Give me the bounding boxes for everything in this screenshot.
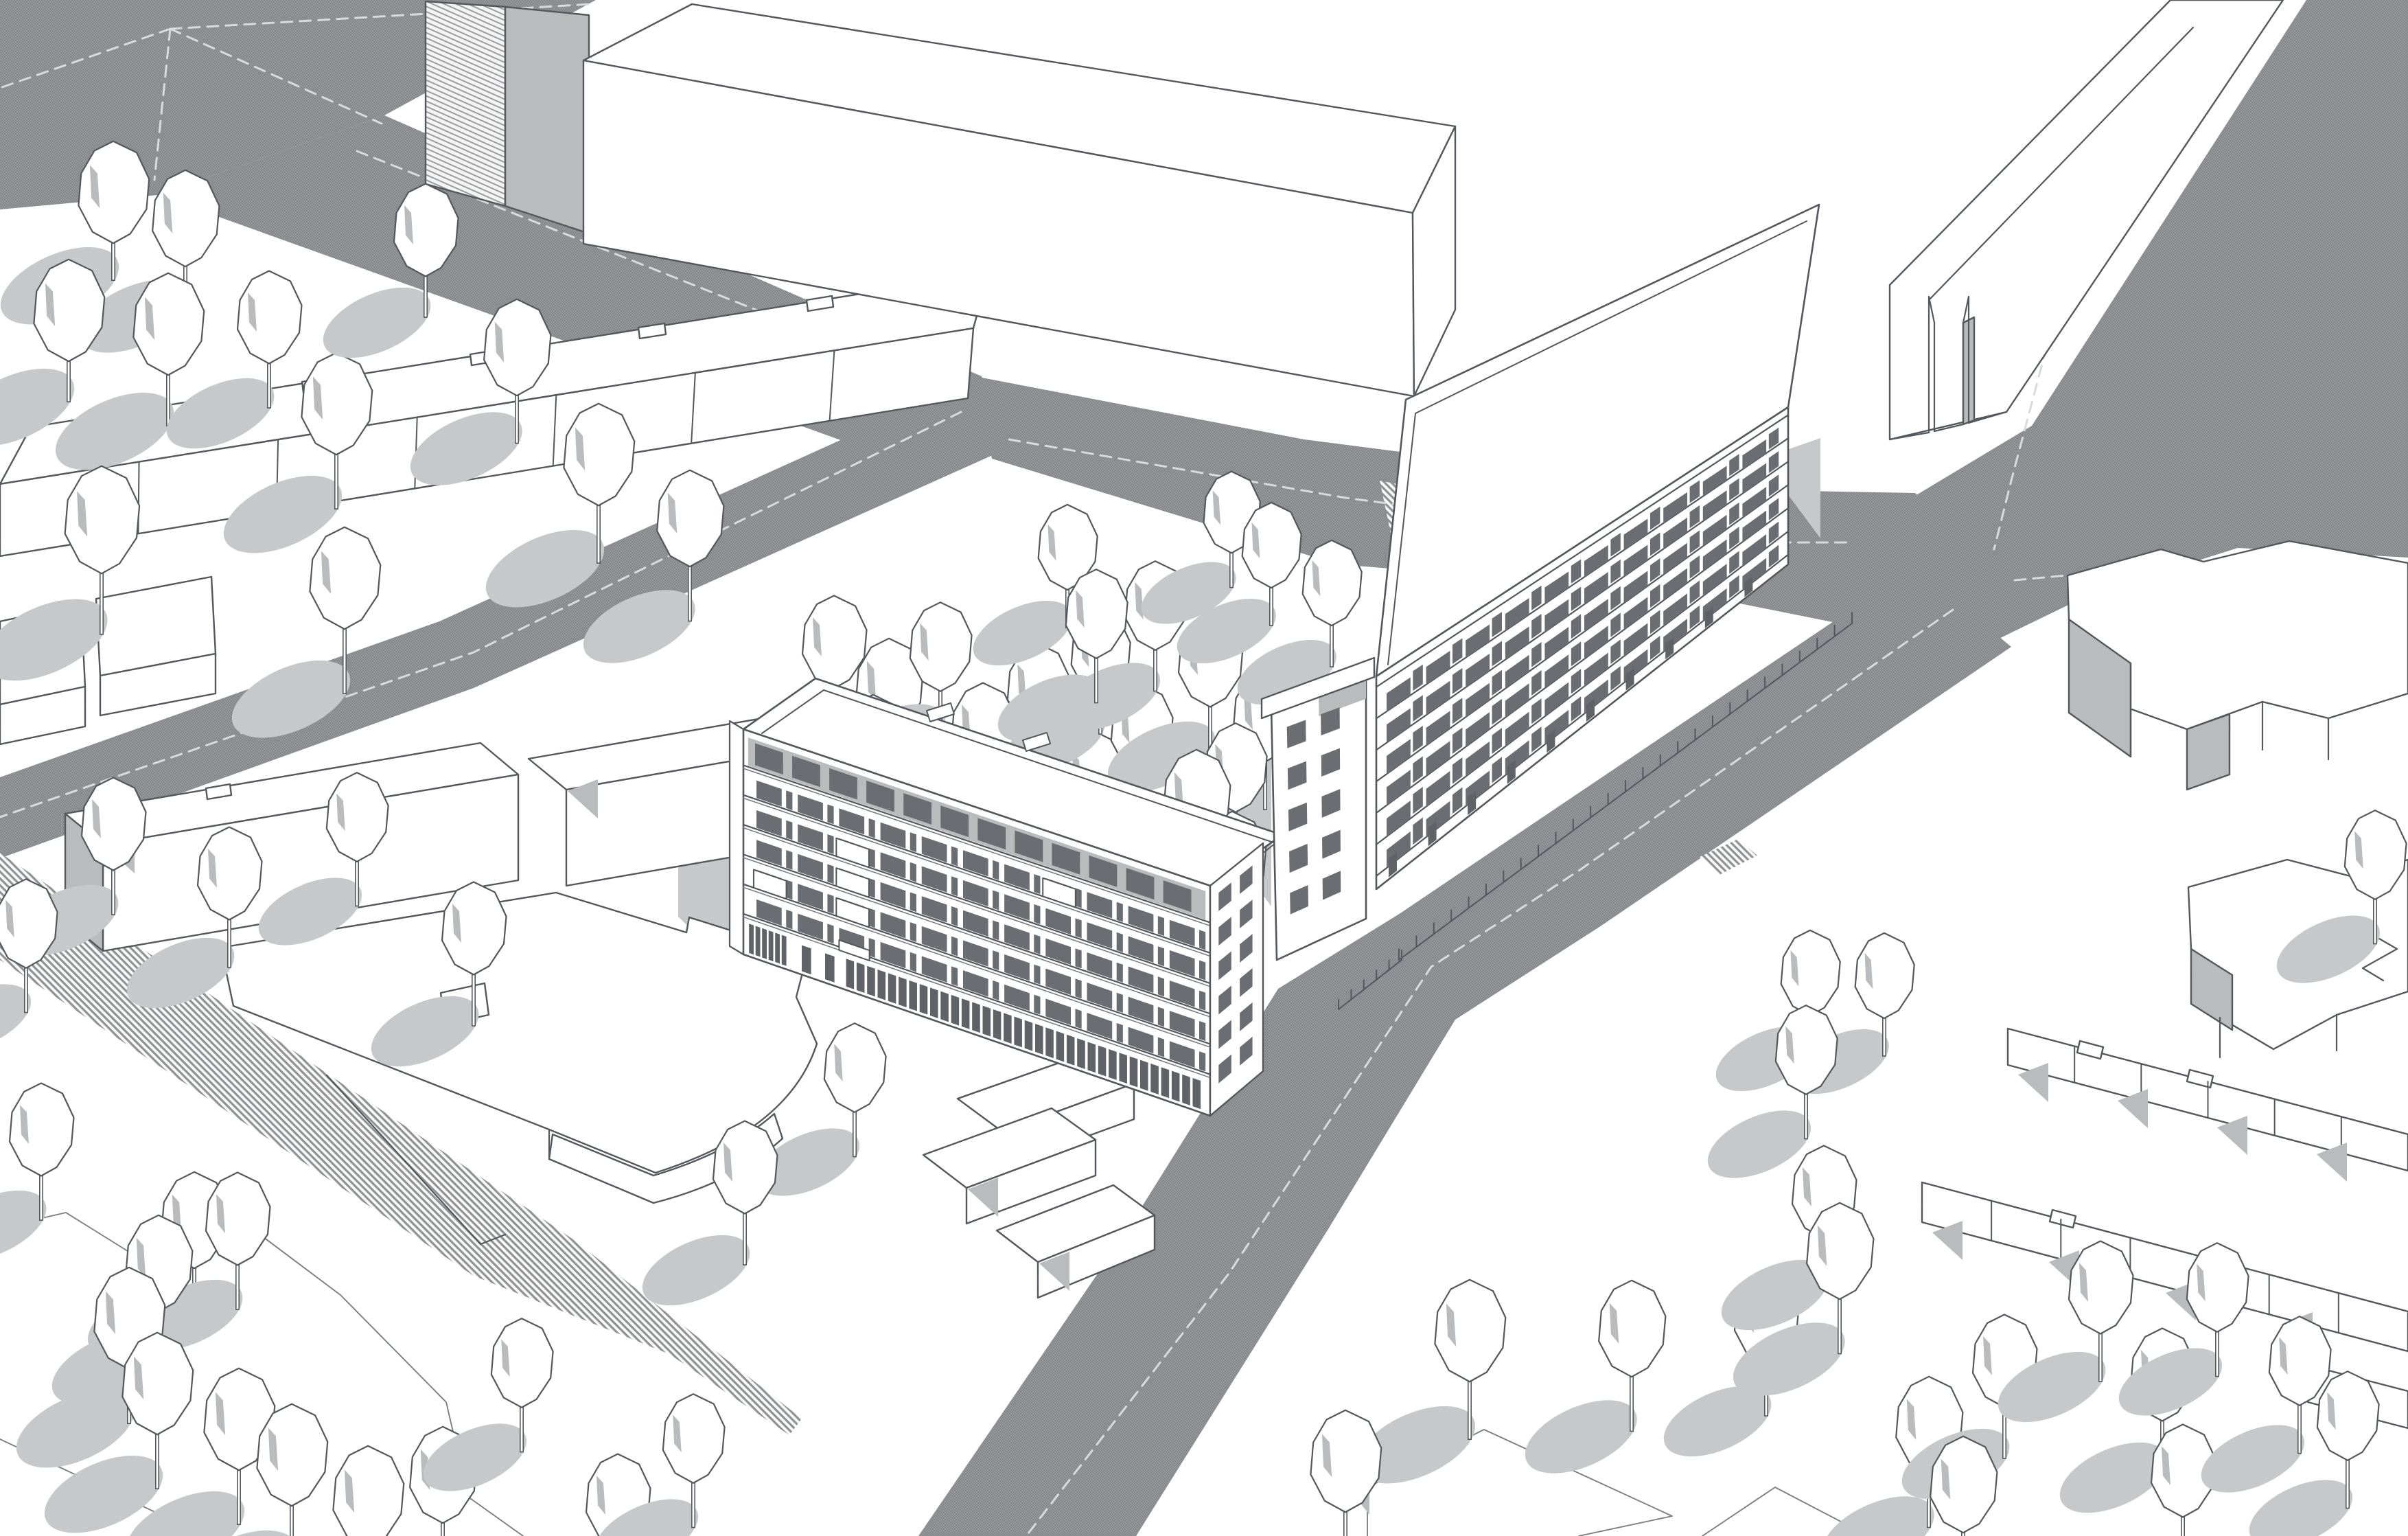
tree-trunk [40, 1170, 43, 1220]
window-door [827, 894, 833, 914]
window-door [1158, 916, 1164, 936]
storefront-window [1088, 1042, 1096, 1073]
tree-shadow [0, 970, 41, 1066]
tree-trunk [516, 389, 518, 443]
window-door [786, 880, 792, 899]
tree-trunk [1883, 1013, 1886, 1056]
storefront-window [1004, 1013, 1012, 1044]
window-door [951, 937, 958, 956]
tree-trunk [167, 369, 170, 426]
storefront-window [909, 981, 917, 1011]
window-door [910, 952, 916, 972]
tree-trunk [2374, 894, 2376, 944]
sliver-building-north-face [505, 7, 589, 233]
storefront-window [1119, 1053, 1127, 1084]
window-door [993, 920, 999, 940]
window-door [869, 818, 875, 838]
tree-trunk [236, 1259, 239, 1309]
storefront-window [1140, 1060, 1148, 1091]
window-door [951, 876, 958, 896]
window-door [786, 790, 792, 810]
window-door [1117, 1023, 1123, 1043]
tree-canopy [824, 1023, 886, 1112]
site-axonometric-drawing [0, 0, 2408, 1536]
storefront-window [846, 959, 855, 989]
window-door [786, 850, 792, 870]
tree-shadow [1221, 1524, 1363, 1536]
window-door [993, 860, 999, 880]
tree-canopy [1310, 1410, 1381, 1513]
window-door [1199, 960, 1205, 980]
tree-trunk [1468, 1375, 1471, 1439]
tree-trunk [2298, 1400, 2301, 1454]
storefront-window [1150, 1064, 1159, 1094]
window-door [1034, 935, 1040, 954]
storefront-window [1172, 1070, 1180, 1101]
tree-canopy [333, 1446, 404, 1536]
tree [0, 1084, 74, 1276]
tree [413, 1318, 553, 1505]
window-door [993, 981, 999, 1000]
entrance-door [825, 953, 835, 983]
window-door [1199, 930, 1205, 950]
window-door [1034, 874, 1040, 894]
window-door [951, 906, 958, 926]
window-door [786, 910, 792, 930]
window-door [910, 862, 916, 882]
storefront-window [930, 987, 938, 1018]
tree-trunk [2216, 1327, 2219, 1377]
window-door [827, 924, 833, 943]
storefront-window [1130, 1056, 1138, 1087]
storefront-window [983, 1006, 991, 1037]
tree-canopy [1781, 930, 1840, 1016]
tree-trunk [472, 969, 475, 1026]
window-door [910, 922, 916, 942]
tree-trunk [597, 499, 600, 563]
tree-trunk [853, 1107, 856, 1157]
tower-facade [1271, 673, 1366, 960]
window-door [1158, 946, 1164, 966]
site-axonometric-figure [0, 0, 2408, 1536]
storefront-window [1025, 1020, 1033, 1051]
storefront-window [867, 966, 875, 997]
cluster-east-upper [2068, 541, 2408, 790]
window-door [1075, 1009, 1081, 1029]
tree-canopy [802, 596, 867, 689]
storefront-window [940, 991, 949, 1022]
window-door [951, 846, 958, 866]
window-door [1117, 932, 1123, 952]
tree-trunk [1095, 653, 1098, 703]
tree-trunk [688, 560, 691, 621]
window-door [910, 832, 916, 852]
tree-trunk [1838, 1293, 1841, 1353]
window-door [1117, 993, 1123, 1013]
tree-trunk [25, 963, 27, 1013]
window-door [869, 848, 875, 868]
window-door [786, 821, 792, 840]
window-door [910, 892, 916, 912]
window-door [1199, 1051, 1205, 1071]
tree-trunk [238, 1464, 240, 1524]
tree-canopy [1435, 1280, 1505, 1382]
window-door [951, 966, 958, 986]
tree-trunk [1230, 548, 1233, 588]
window-door [1117, 902, 1123, 922]
tree-trunk [1270, 582, 1273, 626]
storefront-window [993, 1009, 1002, 1040]
tree-trunk [268, 358, 270, 408]
tree [2191, 1316, 2330, 1506]
window-door [1075, 948, 1081, 968]
window-door [1158, 976, 1164, 996]
storefront-window [1161, 1067, 1170, 1098]
window-door [827, 834, 833, 854]
entrance-door [802, 945, 811, 975]
window-door [869, 878, 875, 898]
window-door [1075, 888, 1081, 908]
storefront-window [951, 995, 960, 1026]
window-door [993, 950, 999, 970]
storefront-window [1109, 1049, 1117, 1080]
window-door [1034, 965, 1040, 985]
storefront-window [1182, 1075, 1190, 1105]
tree-shadow [1514, 1385, 1647, 1488]
tree-trunk [520, 1402, 523, 1452]
sliver-building-north-face [426, 1, 505, 206]
window-door [993, 891, 999, 910]
garage-door [762, 928, 767, 959]
garage-door [749, 924, 754, 954]
tree-canopy [663, 1394, 725, 1483]
tree-trunk [692, 1478, 695, 1528]
house-west-b [96, 577, 216, 715]
storefront-window [1014, 1016, 1022, 1047]
tree [1514, 1281, 1665, 1489]
window-door [1158, 1007, 1164, 1027]
storefront-window [1077, 1038, 1085, 1069]
window-door [1075, 978, 1081, 998]
zigzag-row-a [2008, 1029, 2408, 1182]
window-door [1034, 904, 1040, 924]
tree [1221, 1410, 1381, 1536]
window-door [1075, 918, 1081, 938]
storefront-window [1098, 1046, 1107, 1077]
window-door [1034, 995, 1040, 1015]
tree-trunk [2099, 1328, 2102, 1382]
window-door [1199, 991, 1205, 1011]
tree-trunk [100, 566, 103, 634]
garage-door [756, 926, 761, 957]
storefront-window [1193, 1078, 1201, 1109]
left-end-sliver [730, 721, 743, 954]
window-door [1158, 1037, 1164, 1057]
storefront-window [1067, 1035, 1075, 1066]
storefront-window [962, 998, 970, 1029]
window-door [827, 805, 833, 825]
window-door [1117, 963, 1123, 983]
tree-trunk [1805, 1089, 1807, 1139]
end-face [1210, 843, 1263, 1116]
window-door [869, 908, 875, 928]
storefront-window [857, 962, 865, 993]
window-door [827, 864, 833, 884]
tree-trunk [112, 864, 115, 915]
tree-canopy [1855, 933, 1914, 1018]
tree-trunk [1330, 620, 1333, 667]
tree-trunk [343, 623, 346, 694]
tree-trunk [743, 1208, 746, 1265]
tree-canopy [238, 271, 302, 364]
tree-canopy [310, 527, 380, 630]
tree-canopy [1599, 1281, 1665, 1377]
tree-trunk [1154, 645, 1157, 691]
tree-shadow [0, 1176, 57, 1275]
storefront-window [1035, 1024, 1043, 1055]
garage-door [775, 932, 780, 963]
tree-trunk [228, 914, 231, 967]
storefront-window [1056, 1031, 1065, 1062]
storefront-window [888, 973, 896, 1004]
tree-trunk [424, 271, 427, 317]
tree-shadow [2070, 1524, 2199, 1536]
tree-trunk [335, 448, 338, 509]
storefront-window [878, 970, 886, 1000]
garage-door [769, 930, 774, 961]
storefront-window [899, 977, 907, 1008]
storefront-window [1045, 1027, 1054, 1058]
garage-door [782, 935, 787, 966]
storefront-window [972, 1002, 980, 1033]
tree-trunk [1630, 1371, 1633, 1431]
tree-canopy [10, 1084, 74, 1176]
tree-trunk [2346, 1455, 2349, 1509]
tree-canopy [491, 1318, 553, 1408]
window-door [1199, 1021, 1205, 1041]
tree-trunk [156, 1428, 159, 1489]
storefront-window [920, 984, 928, 1015]
tree-trunk [356, 856, 358, 906]
